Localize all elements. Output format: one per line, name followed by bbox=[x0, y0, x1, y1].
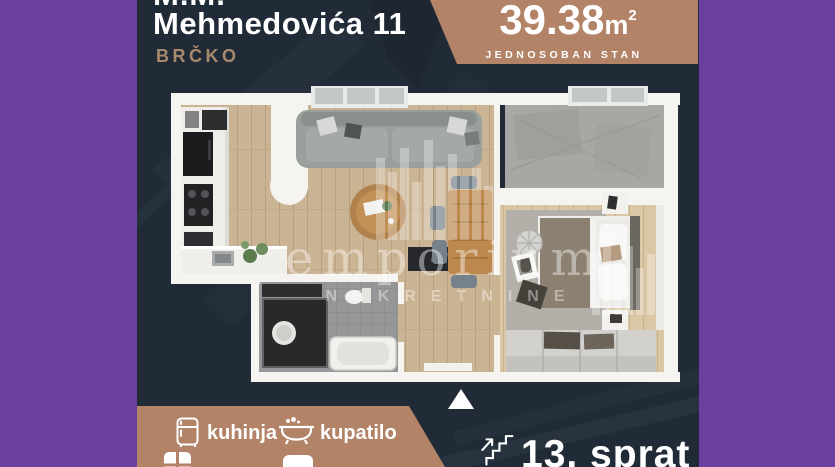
watermark-subtitle: NEKRETNINE bbox=[285, 288, 605, 306]
wardrobe bbox=[506, 330, 656, 372]
area-badge: 39.38m2 JEDNOSOBAN STAN bbox=[430, 0, 698, 64]
floor-number-label: 13. sprat bbox=[521, 434, 690, 467]
stairs-icon bbox=[476, 428, 518, 467]
terrace-door bbox=[568, 86, 648, 106]
fridge-icon bbox=[176, 417, 200, 448]
bathtub-icon bbox=[278, 417, 315, 446]
window-icon bbox=[164, 452, 191, 467]
area-value: 39.38m2 bbox=[430, 0, 698, 48]
city-label: BRČKO bbox=[156, 46, 240, 66]
furniture-icon bbox=[283, 455, 313, 467]
address-line2: Mehmedovića 11 bbox=[153, 7, 406, 40]
balcony-door bbox=[311, 86, 408, 108]
real-estate-flyer: M.M. Mehmedovića 11 BRČKO 39.38m2 JEDNOS… bbox=[0, 0, 835, 467]
plant bbox=[243, 249, 257, 263]
watermark-brand: emporium bbox=[285, 234, 605, 284]
north-triangle-icon bbox=[448, 389, 474, 409]
bathtub bbox=[330, 337, 396, 370]
feature-label-kitchen: kuhinja bbox=[207, 422, 277, 445]
feature-label-bathroom: kupatilo bbox=[320, 422, 397, 445]
features-panel: kuhinja kupatilo bbox=[137, 406, 445, 467]
entry-door bbox=[424, 363, 472, 371]
stove bbox=[184, 184, 213, 226]
apartment-type-label: JEDNOSOBAN STAN bbox=[430, 49, 698, 61]
